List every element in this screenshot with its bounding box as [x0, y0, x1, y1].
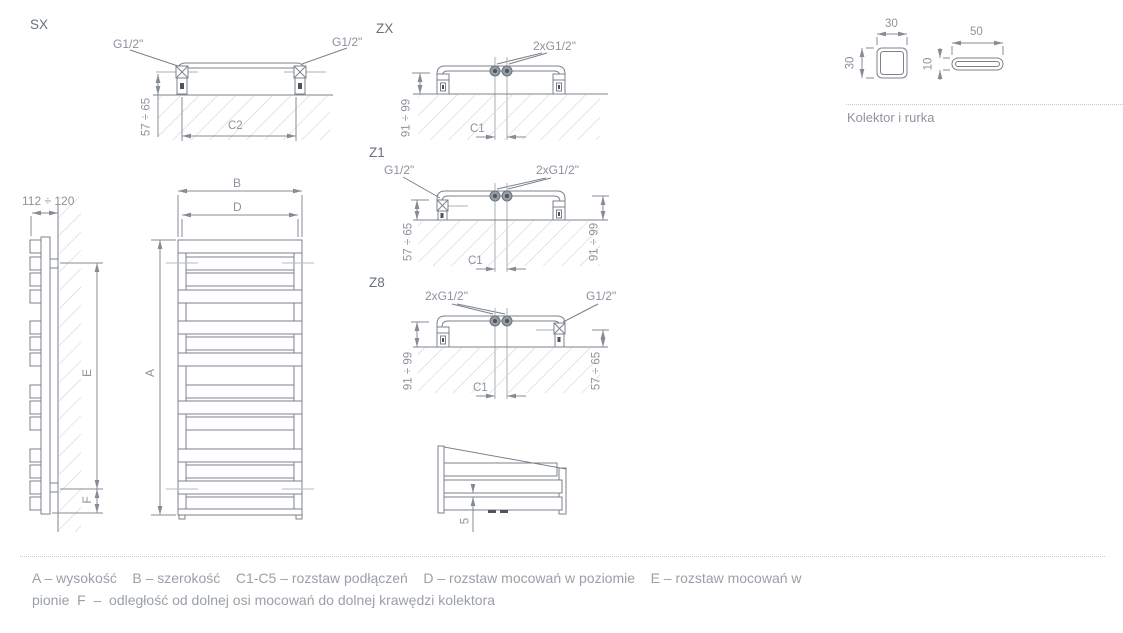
tube-profile-width-dim-label: 50 — [970, 26, 983, 39]
z1-diagram-linework — [403, 177, 609, 272]
legend-divider — [20, 556, 1105, 557]
technical-drawing — [0, 0, 1123, 633]
sx-section-label: SX — [30, 18, 48, 33]
side-mount-spacing-dim-label: E — [81, 369, 93, 377]
z8-right-height-dim-label: 57 ÷ 65 — [591, 352, 603, 390]
sx-left-connection-label: G1/2" — [113, 38, 143, 51]
technical-drawing-page: SX G1/2" G1/2" 57 ÷ 65 C2 ZX 2xG1/2" 91 … — [0, 0, 1123, 633]
slat-gap-dim-label: 5 — [460, 518, 472, 524]
zx-width-dim-label: C1 — [470, 123, 485, 136]
tube-profile-height-dim-label: 10 — [923, 58, 935, 71]
z8-diagram-linework — [411, 304, 609, 399]
side-bottom-offset-dim-label: F — [81, 496, 93, 503]
z1-left-height-dim-label: 57 ÷ 65 — [403, 223, 415, 261]
square-profile-height-dim-label: 30 — [845, 57, 857, 70]
zx-diagram-linework — [412, 53, 608, 140]
z8-section-label: Z8 — [369, 276, 385, 291]
zx-section-label: ZX — [376, 22, 393, 37]
front-width-dim-label: B — [233, 177, 241, 190]
z1-center-connection-label: 2xG1/2" — [536, 164, 579, 177]
zx-height-dim-label: 91 ÷ 99 — [401, 99, 413, 137]
z1-right-height-dim-label: 91 ÷ 99 — [589, 223, 601, 261]
sx-right-connection-label: G1/2" — [332, 36, 362, 49]
legend-line-2: pionie F – odległość od dolnej osi mocow… — [32, 589, 1102, 611]
front-height-dim-label: A — [144, 369, 156, 377]
z8-center-connection-label: 2xG1/2" — [425, 290, 468, 303]
zx-center-connection-label: 2xG1/2" — [533, 40, 576, 53]
square-profile-width-dim-label: 30 — [885, 18, 898, 31]
z1-width-dim-label: C1 — [468, 255, 483, 268]
front-view-linework — [151, 191, 314, 519]
z8-left-height-dim-label: 91 ÷ 99 — [403, 352, 415, 390]
z8-right-connection-label: G1/2" — [586, 290, 616, 303]
slat-detail-linework — [438, 446, 566, 532]
profiles-divider — [846, 104, 1123, 105]
sx-height-dim-label: 57 ÷ 65 — [141, 98, 153, 136]
z1-left-connection-label: G1/2" — [384, 164, 414, 177]
sx-width-dim-label: C2 — [228, 120, 243, 133]
legend-line-1: A – wysokość B – szerokość C1-C5 – rozst… — [32, 567, 1102, 589]
front-mount-width-dim-label: D — [233, 201, 242, 214]
profiles-caption: Kolektor i rurka — [847, 110, 934, 125]
side-view-linework — [30, 197, 103, 532]
z8-width-dim-label: C1 — [473, 382, 488, 395]
z1-section-label: Z1 — [369, 146, 385, 161]
side-depth-dim-label: 112 ÷ 120 — [22, 195, 74, 208]
